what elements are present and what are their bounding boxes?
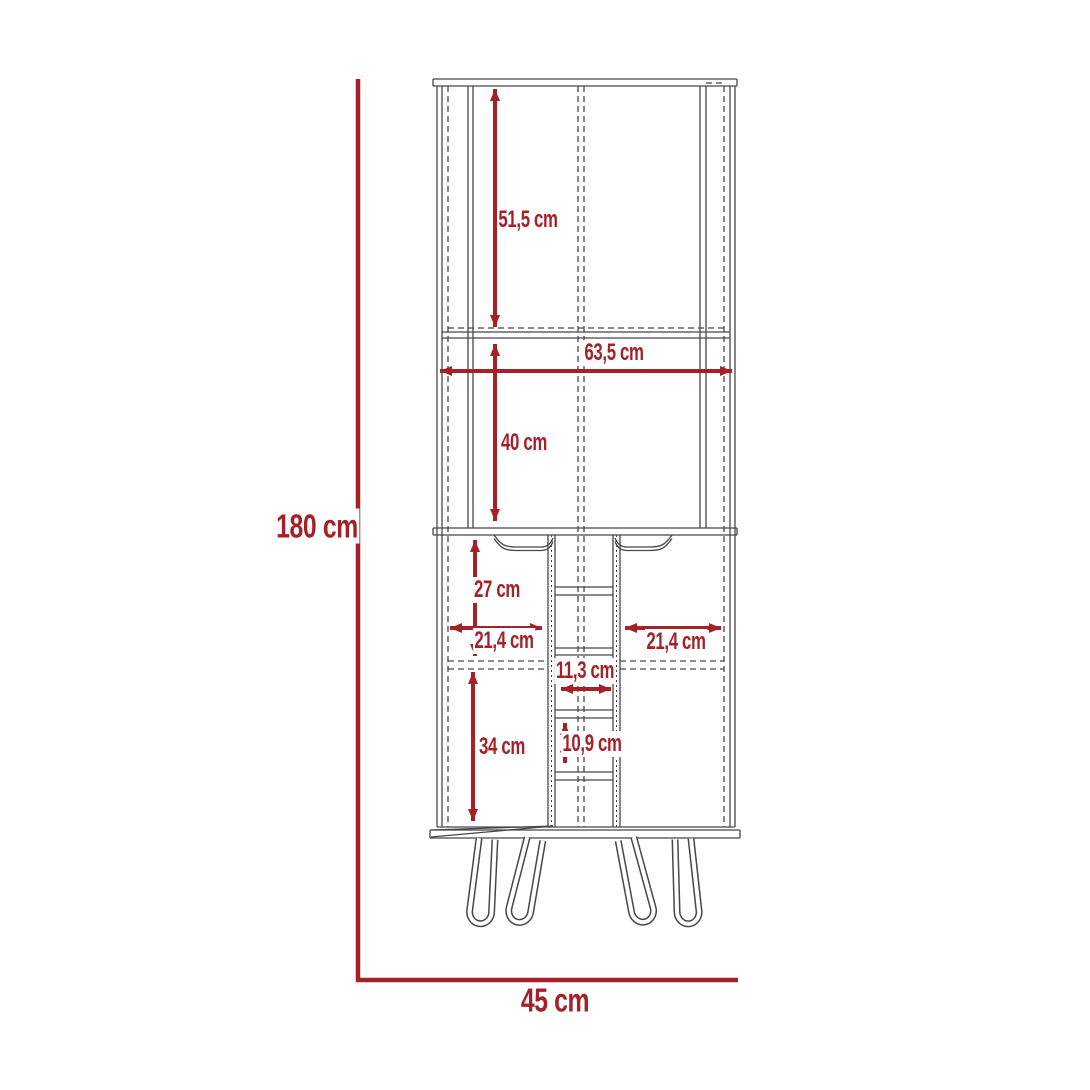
cabinet-carcass — [437, 86, 735, 827]
dim-label-total-height: 180 cm — [275, 509, 360, 544]
middle-divider — [433, 528, 737, 535]
dim-label-center-shelf-spacing: 10,9 cm — [561, 731, 623, 757]
dim-label-total-width: 63,5 cm — [583, 340, 645, 366]
hairpin-legs — [469, 837, 700, 925]
top-panel — [433, 79, 737, 86]
diagram-canvas: 180 cm 45 cm 51,5 cm 63,5 cm 40 cm 27 cm… — [0, 0, 1090, 1090]
dim-label-door-upper-height: 27 cm — [473, 577, 522, 603]
hairpin-leg — [469, 838, 498, 925]
dim-label-total-depth: 45 cm — [519, 983, 590, 1018]
dim-label-middle-section-height: 40 cm — [500, 430, 549, 456]
hairpin-leg — [507, 837, 546, 925]
furniture-drawing-svg — [0, 0, 1090, 1090]
dim-label-door-lower-height: 34 cm — [478, 734, 527, 760]
door-handle-cutouts — [494, 535, 672, 551]
dim-label-upper-section-height: 51,5 cm — [497, 207, 559, 233]
dim-label-center-column-width: 11,3 cm — [554, 658, 615, 684]
base-panel — [430, 826, 740, 838]
dim-label-right-door-width: 21,4 cm — [645, 629, 707, 655]
hairpin-leg — [672, 838, 700, 924]
hairpin-leg — [615, 837, 656, 925]
upper-shelf — [442, 328, 730, 338]
dim-label-left-door-width: 21,4 cm — [473, 628, 535, 654]
